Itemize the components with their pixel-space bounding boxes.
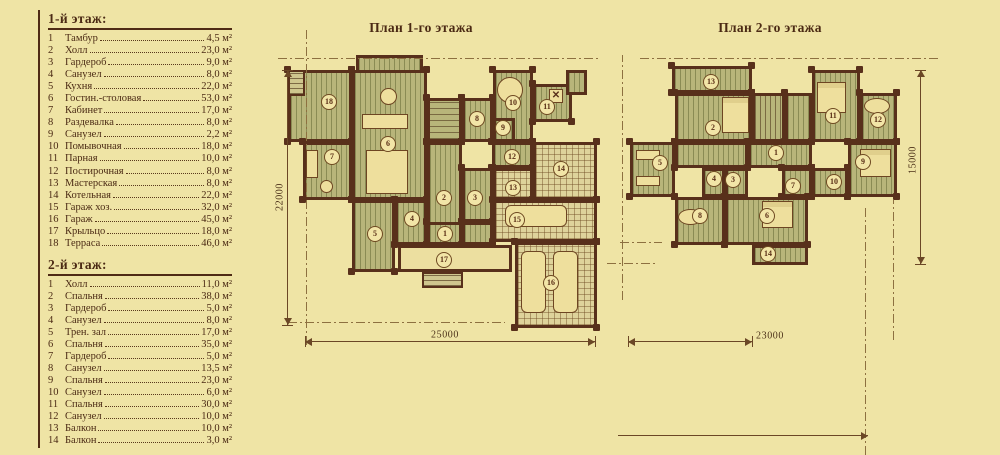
dimension-arrow xyxy=(284,70,292,77)
axis-line xyxy=(607,263,658,264)
log-joint xyxy=(671,89,678,96)
log-joint xyxy=(529,164,536,171)
room-number-badge: 6 xyxy=(380,136,396,152)
floor-plan-sheet: { "legend": { "sections": [ { "title": "… xyxy=(0,0,1000,455)
room-number-badge: 3 xyxy=(725,172,741,188)
room-number-badge: 10 xyxy=(505,95,521,111)
furniture-circle xyxy=(320,180,333,193)
log-joint xyxy=(721,241,728,248)
room-number-badge: 10 xyxy=(826,174,842,190)
plans-canvas: 187681091112141323541171516✕132111219107… xyxy=(0,0,1000,455)
furniture-bed xyxy=(722,97,749,133)
axis-line xyxy=(306,28,307,345)
room-number-badge: 5 xyxy=(652,155,668,171)
furniture-rect xyxy=(362,114,408,129)
log-joint xyxy=(778,164,785,171)
dimension-label: 25000 xyxy=(431,330,459,341)
log-joint xyxy=(489,66,496,73)
log-joint xyxy=(593,138,600,145)
dimension-arrow xyxy=(917,70,925,77)
log-joint xyxy=(844,164,851,171)
room-number-badge: 1 xyxy=(437,226,453,242)
room-number-badge: 9 xyxy=(495,120,511,136)
log-joint xyxy=(391,268,398,275)
log-joint xyxy=(391,196,398,203)
dimension-arrow xyxy=(588,338,595,346)
log-joint xyxy=(423,196,430,203)
furniture-circle xyxy=(380,88,397,105)
log-joint xyxy=(856,66,863,73)
room-number-badge: 8 xyxy=(692,208,708,224)
log-joint xyxy=(489,164,496,171)
room xyxy=(675,142,748,168)
room-number-badge: 17 xyxy=(436,252,452,268)
room-number-badge: 3 xyxy=(467,190,483,206)
log-joint xyxy=(893,193,900,200)
dimension-arrow xyxy=(861,432,868,440)
log-joint xyxy=(671,193,678,200)
log-joint xyxy=(529,66,536,73)
log-joint xyxy=(844,193,851,200)
dimension-arrow xyxy=(305,338,312,346)
room-number-badge: 6 xyxy=(759,208,775,224)
room-number-badge: 7 xyxy=(324,149,340,165)
log-joint xyxy=(348,196,355,203)
log-joint xyxy=(299,138,306,145)
dimension-arrow xyxy=(284,318,292,325)
dimension-line xyxy=(618,435,868,436)
log-joint xyxy=(423,138,430,145)
room-number-badge: 9 xyxy=(855,154,871,170)
room-number-badge: 15 xyxy=(509,212,525,228)
axis-line xyxy=(620,242,662,243)
log-joint xyxy=(348,66,355,73)
log-joint xyxy=(529,80,536,87)
room-number-badge: 14 xyxy=(553,161,569,177)
axis-line xyxy=(288,322,505,323)
dimension-line xyxy=(920,70,921,264)
log-joint xyxy=(626,193,633,200)
log-joint xyxy=(668,62,675,69)
log-joint xyxy=(671,164,678,171)
log-joint xyxy=(423,218,430,225)
log-joint xyxy=(348,268,355,275)
log-joint xyxy=(893,89,900,96)
dimension-tick xyxy=(305,336,306,347)
axis-line xyxy=(865,205,866,455)
room-number-badge: 12 xyxy=(504,149,520,165)
dimension-line xyxy=(305,341,595,342)
furniture-rect xyxy=(366,150,408,194)
log-joint xyxy=(299,196,306,203)
log-joint xyxy=(808,164,815,171)
axis-line xyxy=(640,58,940,59)
log-joint xyxy=(391,241,398,248)
room-number-badge: 13 xyxy=(703,74,719,90)
dimension-label: 22000 xyxy=(275,183,286,211)
dimension-tick xyxy=(628,336,629,347)
log-joint xyxy=(593,196,600,203)
log-joint xyxy=(593,238,600,245)
log-joint xyxy=(626,138,633,145)
dimension-tick xyxy=(915,70,926,71)
log-joint xyxy=(808,66,815,73)
log-joint xyxy=(804,193,811,200)
log-joint xyxy=(458,218,465,225)
log-joint xyxy=(671,241,678,248)
room-number-badge: 5 xyxy=(367,226,383,242)
dimension-arrow xyxy=(628,338,635,346)
log-joint xyxy=(458,138,465,145)
log-joint xyxy=(529,118,536,125)
log-joint xyxy=(593,324,600,331)
room xyxy=(752,93,785,142)
room-number-badge: 8 xyxy=(469,111,485,127)
log-joint xyxy=(844,138,851,145)
log-joint xyxy=(671,138,678,145)
dimension-tick xyxy=(595,336,596,347)
axis-line xyxy=(893,200,894,340)
log-joint xyxy=(808,138,815,145)
room-number-badge: 7 xyxy=(785,178,801,194)
log-joint xyxy=(458,94,465,101)
dimension-tick xyxy=(282,70,293,71)
room xyxy=(785,93,812,142)
dimension-tick xyxy=(915,264,926,265)
room-number-badge: 4 xyxy=(706,171,722,187)
furniture-rect xyxy=(306,150,318,178)
room xyxy=(427,98,462,142)
furniture-rect xyxy=(636,176,660,186)
axis-line xyxy=(278,58,600,59)
log-joint xyxy=(458,164,465,171)
log-joint xyxy=(856,89,863,96)
room-number-badge: 1 xyxy=(768,145,784,161)
log-joint xyxy=(511,238,518,245)
dimension-line xyxy=(287,70,288,325)
log-joint xyxy=(423,66,430,73)
log-joint xyxy=(489,238,496,245)
log-joint xyxy=(721,193,728,200)
log-joint xyxy=(511,324,518,331)
dimension-label: 15000 xyxy=(908,146,919,174)
dimension-tick xyxy=(282,325,293,326)
room-number-badge: 13 xyxy=(505,180,521,196)
dimension-line xyxy=(628,341,752,342)
dimension-arrow xyxy=(745,338,752,346)
room-number-badge: 18 xyxy=(321,94,337,110)
room-number-badge: 11 xyxy=(539,99,555,115)
log-joint xyxy=(489,196,496,203)
room xyxy=(398,245,512,272)
room xyxy=(422,272,463,288)
log-joint xyxy=(744,138,751,145)
log-joint xyxy=(748,62,755,69)
log-joint xyxy=(529,138,536,145)
log-joint xyxy=(568,118,575,125)
log-joint xyxy=(488,138,495,145)
dimension-label: 23000 xyxy=(756,331,784,342)
dimension-arrow xyxy=(917,257,925,264)
room-number-badge: 4 xyxy=(404,211,420,227)
log-joint xyxy=(423,94,430,101)
room xyxy=(566,70,587,95)
room-number-badge: 14 xyxy=(760,246,776,262)
room-number-badge: 2 xyxy=(705,120,721,136)
room-number-badge: 16 xyxy=(543,275,559,291)
room-number-badge: 11 xyxy=(825,108,841,124)
log-joint xyxy=(893,138,900,145)
room-number-badge: 12 xyxy=(870,112,886,128)
log-joint xyxy=(748,89,755,96)
dimension-tick xyxy=(752,336,753,347)
room-number-badge: 2 xyxy=(436,190,452,206)
